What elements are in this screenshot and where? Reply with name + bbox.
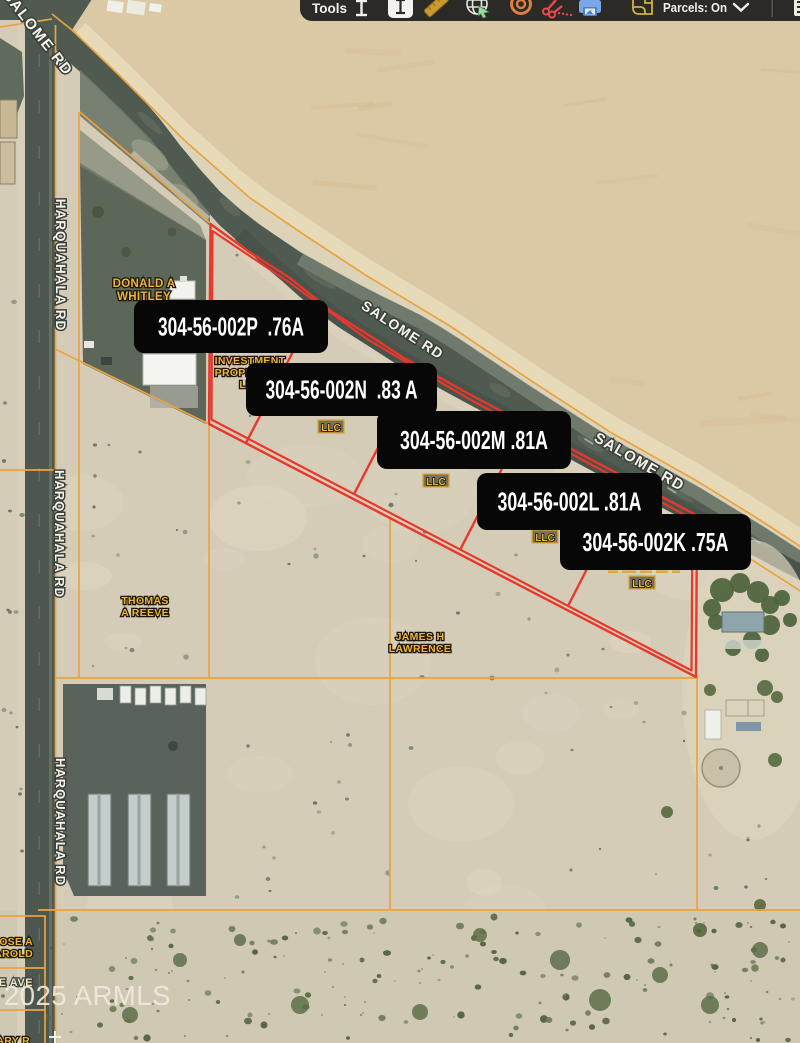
svg-text:Parcels: On: Parcels: On: [663, 0, 727, 15]
svg-text:© 2025 ARMLS: © 2025 ARMLS: [0, 980, 171, 1011]
svg-text:THOMAS: THOMAS: [121, 595, 168, 607]
svg-text:LAWRENCE: LAWRENCE: [389, 643, 451, 655]
svg-text:HARQUAHALA RD: HARQUAHALA RD: [53, 758, 68, 886]
svg-text:304-56-002L .81A: 304-56-002L .81A: [498, 487, 642, 517]
svg-text:DONALD A: DONALD A: [113, 278, 176, 290]
svg-text:Tools: Tools: [312, 1, 347, 16]
svg-text:A REEVE: A REEVE: [121, 607, 169, 619]
svg-text:LLC: LLC: [632, 579, 651, 590]
svg-text:304-56-002K .75A: 304-56-002K .75A: [583, 527, 729, 557]
svg-text:HARQUAHALA RD: HARQUAHALA RD: [53, 199, 68, 332]
svg-text:304-56-002M .81A: 304-56-002M .81A: [400, 425, 548, 455]
svg-text:LLC: LLC: [321, 423, 340, 434]
svg-text:304-56-002P .76A: 304-56-002P .76A: [158, 312, 304, 342]
svg-text:HAROLD: HAROLD: [0, 948, 33, 960]
svg-text:HARQUAHALA RD: HARQUAHALA RD: [52, 470, 67, 598]
svg-text:JAMES H: JAMES H: [396, 631, 445, 643]
svg-text:MARY R: MARY R: [0, 1035, 30, 1043]
svg-text:LLC: LLC: [426, 477, 445, 488]
svg-text:LLC: LLC: [535, 533, 554, 544]
svg-text:304-56-002N .83 A: 304-56-002N .83 A: [266, 375, 418, 405]
svg-text:JOSE A: JOSE A: [0, 936, 33, 948]
